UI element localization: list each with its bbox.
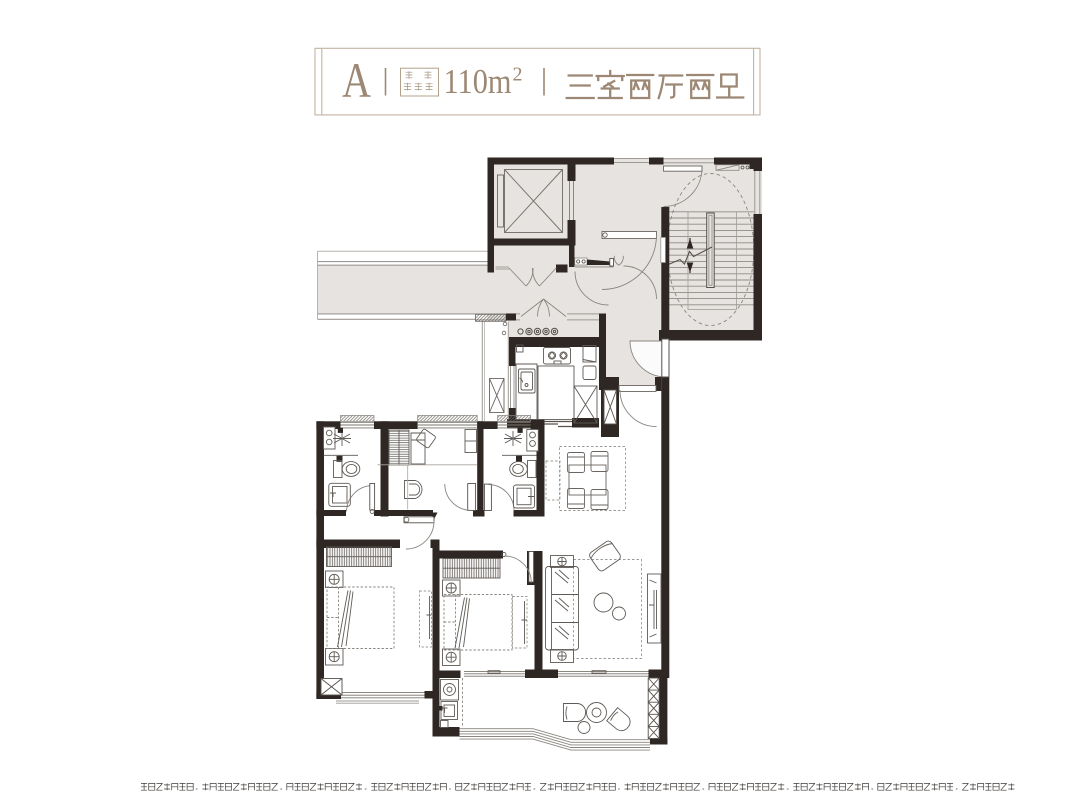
svg-text:A: A — [342, 52, 371, 108]
svg-text:110m: 110m — [444, 63, 512, 101]
svg-text:2: 2 — [513, 64, 523, 86]
